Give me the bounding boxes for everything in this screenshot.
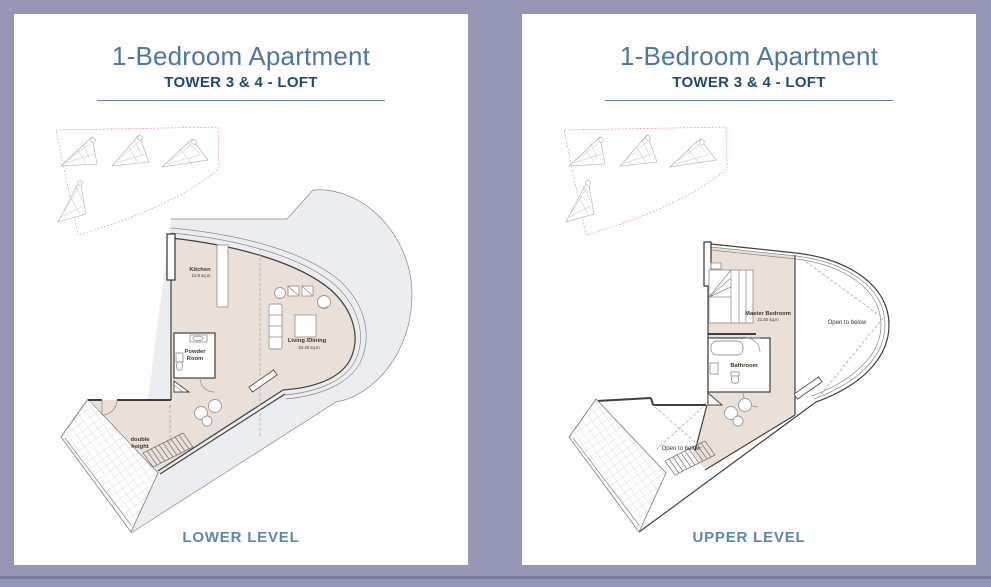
header-divider bbox=[605, 100, 893, 101]
floor-plan-upper: Master Bedroom 21.60 sq.m Bathroom Open … bbox=[563, 185, 973, 545]
room-area-kitchen: 13.8 sq.m bbox=[192, 273, 211, 278]
label-open-to-below-left: Open to below bbox=[662, 446, 701, 452]
tower-cluster bbox=[670, 139, 716, 167]
floor-plan-lower: Kitchen 13.8 sq.m Powder Room Living /Di… bbox=[55, 185, 465, 545]
level-label-upper: UPPER LEVEL bbox=[522, 529, 976, 546]
kitchen-island bbox=[217, 245, 228, 307]
open-void-right bbox=[798, 256, 883, 399]
room-label-powder-2: Room bbox=[187, 356, 203, 362]
page-subtitle: TOWER 3 & 4 - LOFT bbox=[14, 74, 468, 91]
tower-cluster bbox=[620, 135, 657, 166]
page-subtitle: TOWER 3 & 4 - LOFT bbox=[522, 74, 976, 91]
wall-pillar bbox=[167, 234, 175, 280]
page-lower-level: 1-Bedroom Apartment TOWER 3 & 4 - LOFT bbox=[14, 14, 468, 565]
room-label-double-1: double bbox=[131, 437, 151, 443]
tower-cluster bbox=[162, 139, 208, 167]
page-title: 1-Bedroom Apartment bbox=[14, 43, 468, 70]
page-upper-level: 1-Bedroom Apartment TOWER 3 & 4 - LOFT bbox=[522, 14, 976, 565]
room-area-living: 34.40 sq.m bbox=[298, 345, 320, 350]
door-panel bbox=[794, 377, 822, 399]
entry-wall bbox=[596, 398, 706, 405]
room-area-master: 21.60 sq.m bbox=[757, 317, 779, 322]
open-void-left bbox=[655, 407, 703, 449]
tower-cluster bbox=[112, 135, 149, 166]
header-divider bbox=[97, 100, 385, 101]
room-label-living: Living /Dining bbox=[288, 338, 327, 344]
label-open-to-below-right: Open to below bbox=[828, 320, 867, 326]
tower-cluster bbox=[569, 137, 605, 166]
tiled-terrace bbox=[569, 399, 666, 532]
room-label-double-2: height bbox=[131, 444, 148, 450]
footer-accent-line bbox=[0, 576, 991, 579]
level-label-lower: LOWER LEVEL bbox=[14, 529, 468, 546]
page-title: 1-Bedroom Apartment bbox=[522, 43, 976, 70]
tower-cluster bbox=[61, 137, 97, 166]
room-label-powder-1: Powder bbox=[185, 349, 207, 355]
room-label-bathroom: Bathroom bbox=[730, 363, 757, 369]
